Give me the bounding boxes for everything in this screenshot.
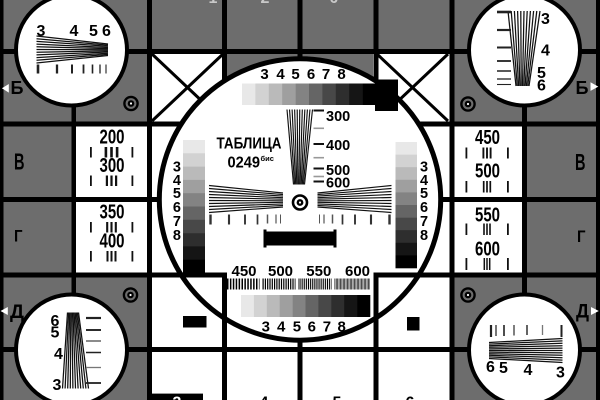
svg-text:600: 600 (475, 239, 500, 261)
svg-text:5: 5 (291, 66, 299, 83)
svg-text:350: 350 (100, 202, 125, 224)
svg-text:5: 5 (293, 319, 301, 336)
svg-text:6: 6 (486, 359, 495, 376)
svg-text:Б: Б (11, 78, 24, 98)
svg-text:Б: Б (576, 78, 589, 98)
svg-text:450: 450 (231, 263, 256, 280)
svg-text:550: 550 (306, 263, 331, 280)
svg-text:3: 3 (541, 11, 550, 28)
svg-text:1: 1 (209, 0, 218, 7)
svg-text:4: 4 (276, 66, 285, 83)
svg-text:600: 600 (326, 176, 350, 192)
svg-text:0249: 0249 (228, 155, 261, 172)
svg-text:6: 6 (102, 23, 111, 40)
svg-text:8: 8 (338, 319, 346, 336)
svg-text:450: 450 (475, 127, 500, 149)
svg-text:Д: Д (576, 302, 589, 323)
svg-text:300: 300 (100, 155, 125, 177)
svg-text:4: 4 (260, 395, 269, 400)
svg-text:Д: Д (10, 302, 24, 323)
svg-text:4: 4 (277, 319, 286, 336)
svg-text:300: 300 (326, 109, 350, 125)
svg-text:0: 0 (330, 0, 339, 7)
svg-text:3: 3 (556, 365, 565, 382)
svg-text:5: 5 (51, 325, 60, 342)
svg-text:8: 8 (173, 228, 181, 244)
svg-text:5: 5 (499, 360, 508, 377)
svg-text:200: 200 (100, 127, 125, 149)
svg-text:6: 6 (307, 66, 315, 83)
svg-text:500: 500 (268, 263, 293, 280)
svg-text:В: В (14, 149, 25, 175)
svg-text:5: 5 (333, 395, 342, 400)
svg-text:5: 5 (89, 23, 98, 40)
svg-text:400: 400 (326, 138, 350, 154)
svg-text:6: 6 (406, 395, 415, 400)
svg-text:3: 3 (260, 66, 268, 83)
svg-text:6: 6 (537, 78, 546, 95)
svg-text:7: 7 (323, 319, 331, 336)
svg-text:6: 6 (308, 319, 316, 336)
svg-text:ТАБЛИЦА: ТАБЛИЦА (217, 136, 282, 153)
svg-text:бис: бис (261, 154, 274, 163)
svg-text:В: В (575, 149, 586, 175)
svg-text:4: 4 (541, 43, 550, 60)
svg-text:500: 500 (475, 161, 500, 183)
svg-text:2: 2 (261, 0, 270, 7)
svg-text:550: 550 (475, 205, 500, 227)
svg-text:Г: Г (577, 227, 586, 246)
svg-text:4: 4 (54, 346, 63, 363)
svg-text:400: 400 (100, 231, 125, 253)
svg-text:3: 3 (53, 377, 62, 394)
svg-text:Г: Г (14, 227, 23, 246)
svg-text:4: 4 (524, 362, 533, 379)
svg-text:3: 3 (173, 395, 182, 400)
svg-text:3: 3 (37, 23, 46, 40)
svg-text:8: 8 (337, 66, 345, 83)
svg-text:600: 600 (345, 263, 370, 280)
svg-text:3: 3 (262, 319, 270, 336)
svg-text:4: 4 (70, 23, 79, 40)
svg-text:7: 7 (322, 66, 330, 83)
svg-text:8: 8 (420, 228, 428, 244)
